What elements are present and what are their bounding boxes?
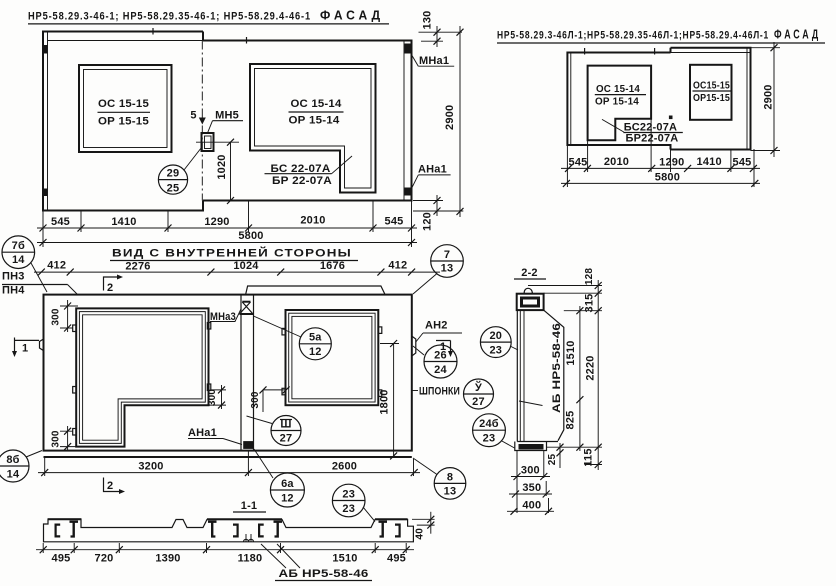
svg-text:ОР 15-14: ОР 15-14 (595, 97, 639, 108)
svg-text:7б: 7б (12, 240, 25, 252)
svg-text:1-1: 1-1 (241, 500, 258, 512)
svg-text:1: 1 (22, 343, 28, 355)
svg-text:1020: 1020 (216, 154, 228, 179)
svg-text:ОР 15-14: ОР 15-14 (289, 115, 341, 127)
svg-text:13: 13 (444, 486, 457, 498)
svg-text:25: 25 (167, 183, 180, 195)
svg-text:БР22-07А: БР22-07А (626, 133, 679, 145)
svg-text:ФАСАД: ФАСАД (774, 28, 821, 42)
svg-text:545: 545 (733, 157, 752, 169)
svg-text:2010: 2010 (300, 215, 325, 227)
svg-text:27: 27 (280, 433, 293, 445)
svg-text:ОС 15-14: ОС 15-14 (291, 98, 343, 110)
svg-text:Ш: Ш (280, 419, 291, 431)
svg-text:АНа1: АНа1 (188, 427, 217, 439)
svg-text:1290: 1290 (659, 157, 684, 169)
svg-text:МНа1: МНа1 (419, 55, 449, 67)
svg-text:350: 350 (522, 482, 541, 494)
svg-text:24: 24 (434, 364, 447, 376)
svg-text:8б: 8б (6, 454, 19, 466)
svg-text:7: 7 (444, 249, 450, 261)
svg-text:1676: 1676 (320, 260, 345, 272)
svg-text:300: 300 (521, 465, 540, 477)
svg-text:27: 27 (472, 396, 485, 408)
svg-text:2900: 2900 (763, 84, 775, 109)
svg-text:5а: 5а (309, 332, 322, 344)
svg-text:29: 29 (167, 168, 180, 180)
svg-text:АНа1: АНа1 (418, 164, 447, 176)
svg-text:2600: 2600 (332, 461, 357, 473)
svg-text:ОС15-15: ОС15-15 (693, 81, 730, 92)
svg-text:23: 23 (489, 345, 502, 357)
svg-text:495: 495 (387, 553, 406, 565)
svg-text:545: 545 (385, 216, 404, 228)
svg-text:545: 545 (51, 216, 70, 228)
svg-text:1510: 1510 (565, 340, 577, 365)
svg-text:300: 300 (250, 391, 261, 409)
svg-text:1510: 1510 (332, 553, 357, 565)
svg-text:12: 12 (281, 493, 294, 505)
svg-text:ПН3: ПН3 (2, 271, 25, 283)
svg-text:6а: 6а (281, 478, 294, 490)
svg-text:1410: 1410 (111, 216, 136, 228)
svg-text:НР5-58.29.3-46-1; НР5-58.29.35: НР5-58.29.3-46-1; НР5-58.29.35-46-1; НР5… (28, 11, 311, 23)
svg-text:23: 23 (342, 489, 355, 501)
svg-text:130: 130 (422, 11, 434, 30)
svg-text:БР 22-07А: БР 22-07А (272, 175, 332, 187)
svg-text:5800: 5800 (655, 172, 680, 184)
svg-text:5: 5 (190, 110, 196, 122)
svg-text:40: 40 (415, 528, 426, 540)
svg-text:2276: 2276 (125, 261, 150, 273)
svg-text:2-2: 2-2 (521, 267, 538, 279)
svg-text:1390: 1390 (155, 553, 180, 565)
svg-text:25: 25 (547, 454, 558, 466)
svg-text:1800: 1800 (379, 389, 391, 414)
svg-text:23: 23 (483, 433, 496, 445)
svg-text:115: 115 (583, 448, 595, 466)
svg-text:АБ НР5-58-46: АБ НР5-58-46 (551, 323, 563, 413)
svg-text:ОР 15-15: ОР 15-15 (98, 116, 149, 128)
svg-text:ФАСАД: ФАСАД (320, 9, 384, 23)
svg-text:2220: 2220 (585, 355, 597, 380)
svg-text:300: 300 (51, 430, 62, 448)
svg-text:545: 545 (569, 157, 588, 169)
svg-text:24б: 24б (479, 418, 499, 430)
svg-text:2: 2 (107, 480, 113, 492)
svg-text:2010: 2010 (604, 156, 629, 168)
svg-text:ВИД С ВНУТРЕННЕЙ СТОРОНЫ: ВИД С ВНУТРЕННЕЙ СТОРОНЫ (112, 247, 352, 260)
svg-text:825: 825 (565, 411, 577, 430)
svg-text:20: 20 (489, 330, 502, 342)
svg-text:720: 720 (95, 553, 114, 565)
svg-text:2: 2 (107, 282, 113, 294)
svg-text:МН5: МН5 (215, 110, 239, 122)
svg-text:315: 315 (584, 294, 596, 313)
svg-text:ШПОНКИ: ШПОНКИ (419, 386, 460, 398)
svg-text:1180: 1180 (238, 553, 263, 565)
svg-text:13: 13 (441, 263, 454, 275)
svg-text:495: 495 (52, 553, 71, 565)
svg-text:26: 26 (434, 350, 447, 362)
svg-text:Ў: Ў (474, 381, 482, 394)
svg-text:300: 300 (51, 308, 62, 326)
svg-text:ОС 15-15: ОС 15-15 (98, 98, 149, 110)
svg-text:5800: 5800 (238, 230, 263, 242)
svg-text:1290: 1290 (204, 216, 229, 228)
svg-text:8: 8 (447, 472, 453, 484)
svg-text:12: 12 (309, 346, 322, 358)
svg-text:3200: 3200 (138, 461, 163, 473)
svg-text:ОС 15-14: ОС 15-14 (596, 84, 640, 95)
svg-text:АБ НР5-58-46: АБ НР5-58-46 (279, 568, 369, 580)
svg-text:23: 23 (342, 503, 355, 515)
svg-text:120: 120 (422, 212, 434, 231)
svg-text:412: 412 (47, 260, 66, 272)
svg-text:412: 412 (388, 260, 407, 272)
svg-text:300: 300 (207, 389, 218, 407)
svg-text:ОР15-15: ОР15-15 (693, 93, 730, 104)
svg-text:400: 400 (522, 499, 541, 511)
svg-text:ПН4: ПН4 (2, 285, 25, 297)
svg-text:1024: 1024 (233, 260, 259, 272)
svg-text:128: 128 (584, 268, 595, 286)
svg-text:2900: 2900 (444, 105, 456, 130)
svg-text:14: 14 (7, 469, 20, 481)
svg-text:14: 14 (12, 254, 25, 266)
svg-text:АН2: АН2 (425, 320, 448, 332)
svg-text:1410: 1410 (697, 156, 722, 168)
svg-text:НР5-58.29.3-46Л-1;НР5-58.29.35: НР5-58.29.3-46Л-1;НР5-58.29.35-46Л-1;НР5… (497, 30, 769, 42)
